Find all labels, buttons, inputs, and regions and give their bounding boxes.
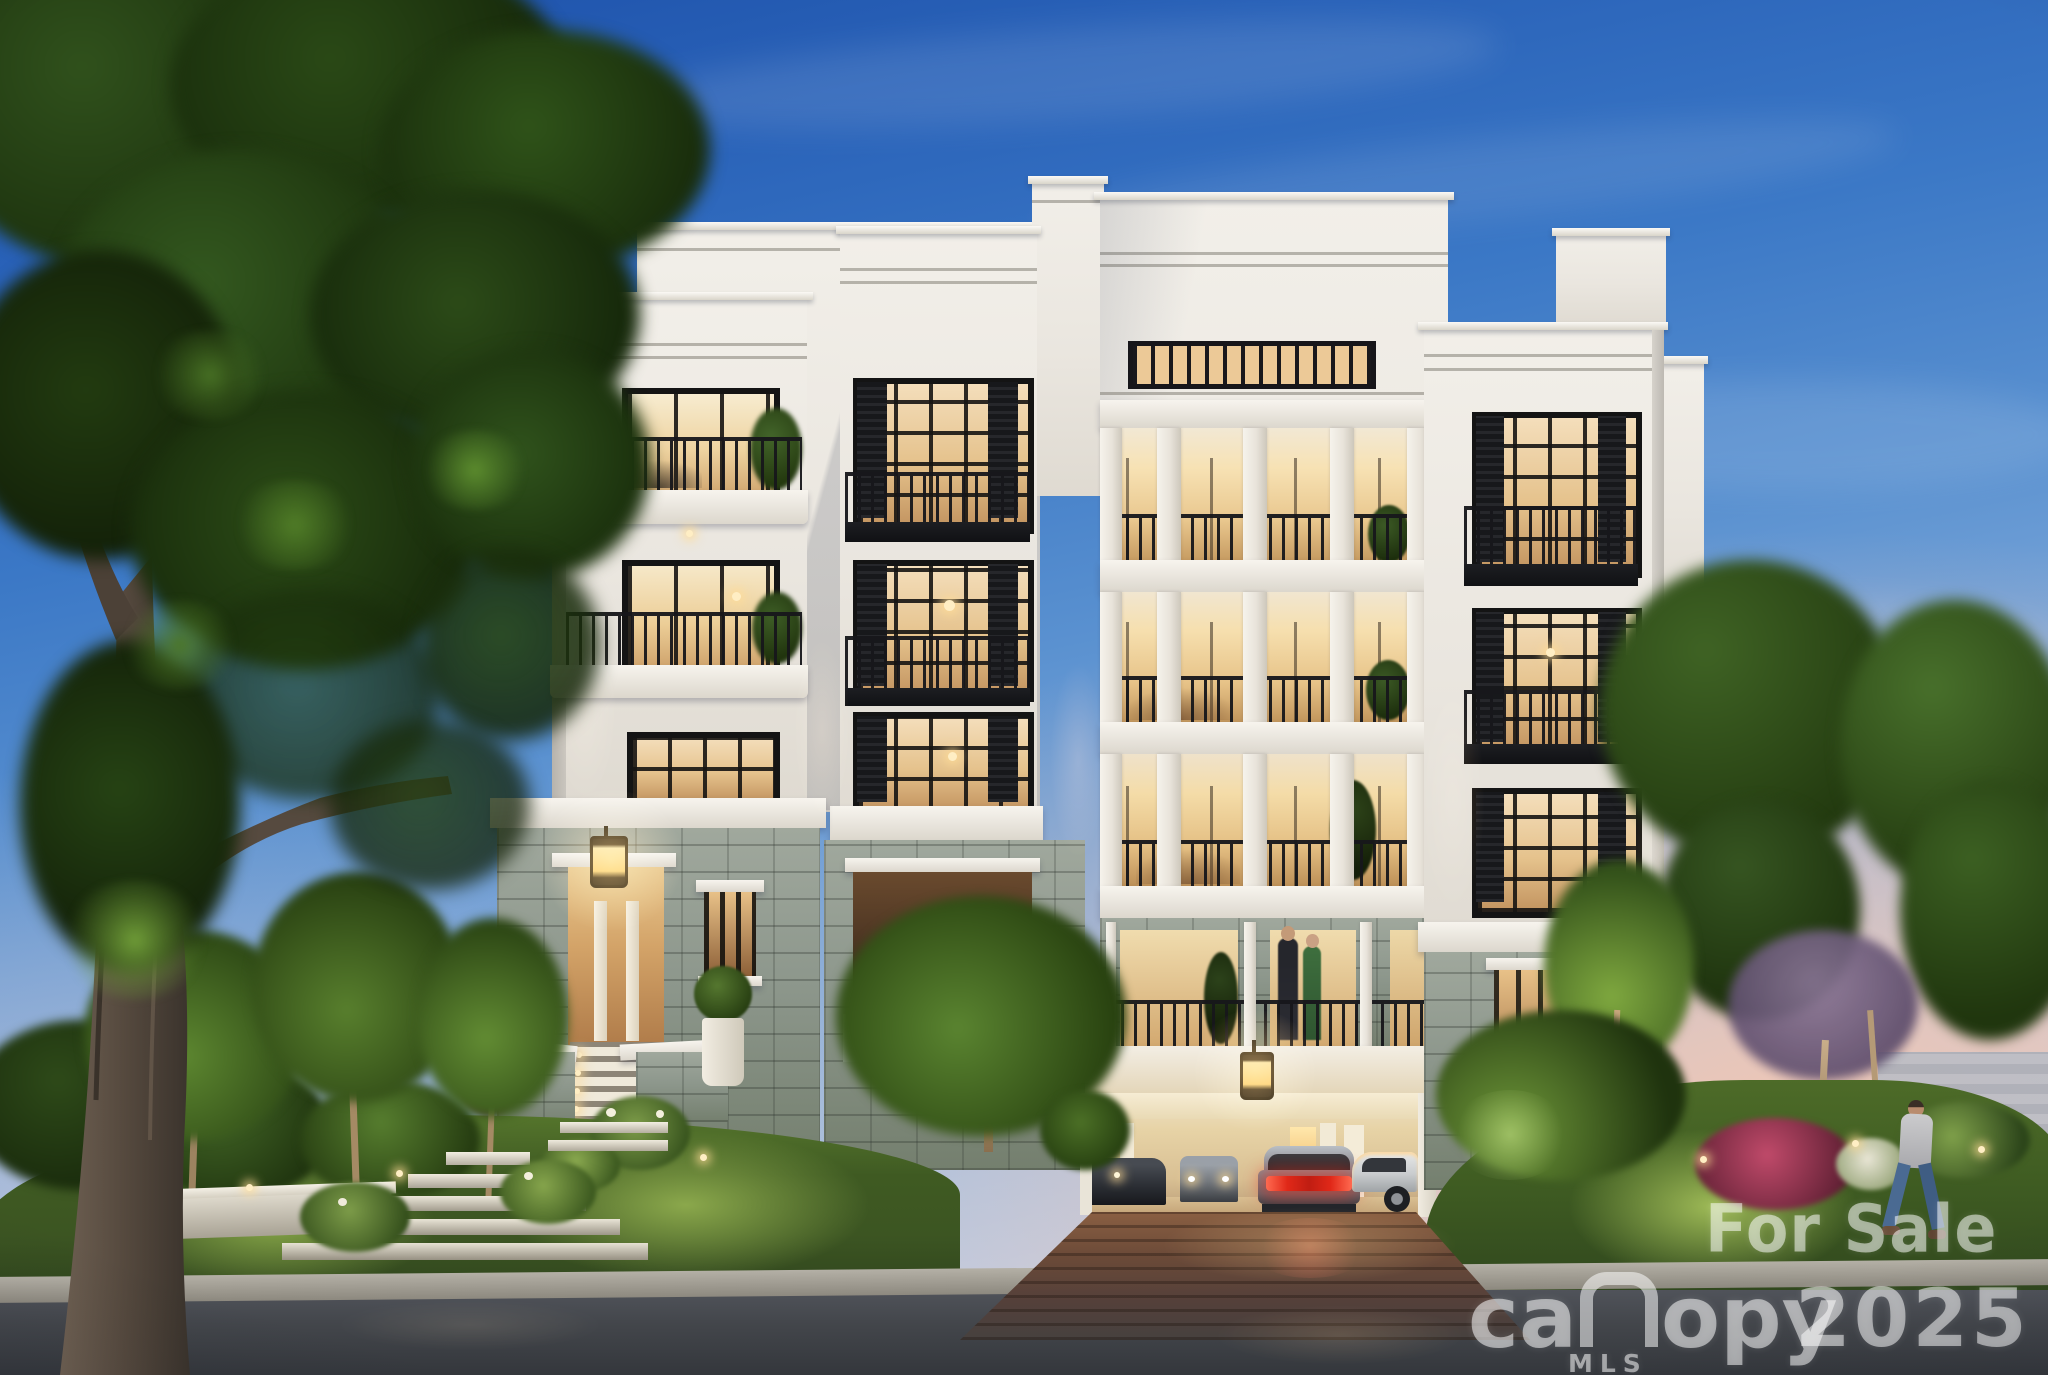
- canopy-arch-icon: [1580, 1272, 1658, 1347]
- garage-lantern: [1240, 1052, 1274, 1100]
- listing-photo: For Sale caopy 2025 MLS: [0, 0, 2048, 1375]
- hedge: [1436, 1010, 1686, 1180]
- car-white-coupe: [1352, 1152, 1418, 1214]
- column: [1157, 754, 1181, 886]
- column: [1157, 428, 1181, 560]
- column: [1157, 592, 1181, 722]
- parapet-block-right-rear: [1556, 228, 1666, 328]
- chandelier: [1546, 648, 1555, 657]
- watermark-year: 2025: [1795, 1272, 2030, 1365]
- parapet-riser: [1032, 176, 1104, 496]
- clerestory-window: [1128, 341, 1376, 389]
- column: [1330, 428, 1354, 560]
- car-red-taillights: [1258, 1146, 1360, 1220]
- watermark-mls: MLS: [1568, 1349, 1648, 1375]
- column: [1330, 754, 1354, 886]
- watermark-brand: caopy: [1468, 1268, 1838, 1368]
- chandelier: [948, 752, 957, 761]
- column: [1330, 592, 1354, 722]
- chandelier: [944, 600, 955, 611]
- taillight-bar: [1266, 1176, 1352, 1191]
- watermark-for-sale: For Sale: [1705, 1190, 1997, 1267]
- column: [1243, 428, 1267, 560]
- column: [1243, 592, 1267, 722]
- column: [1243, 754, 1267, 886]
- jacket: [1899, 1113, 1934, 1169]
